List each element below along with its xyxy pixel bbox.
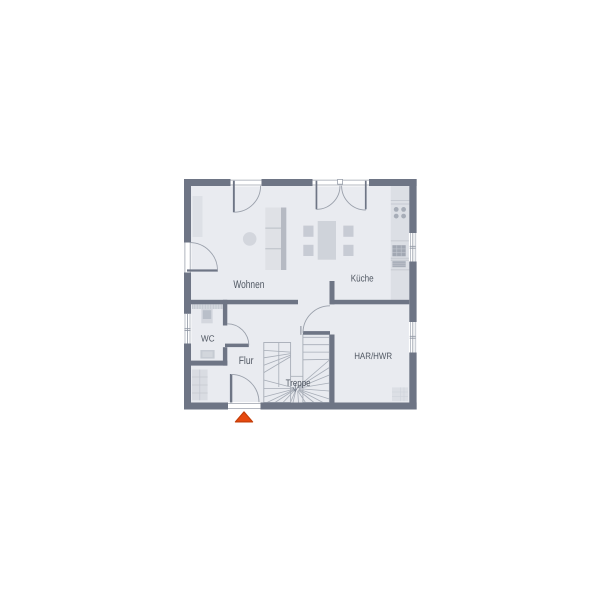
svg-text:WC: WC xyxy=(201,334,215,344)
svg-text:Treppe: Treppe xyxy=(286,378,311,389)
svg-text:HAR/HWR: HAR/HWR xyxy=(354,351,392,361)
svg-text:Küche: Küche xyxy=(351,273,374,284)
svg-text:Wohnen: Wohnen xyxy=(233,279,264,291)
svg-text:Flur: Flur xyxy=(239,355,254,367)
